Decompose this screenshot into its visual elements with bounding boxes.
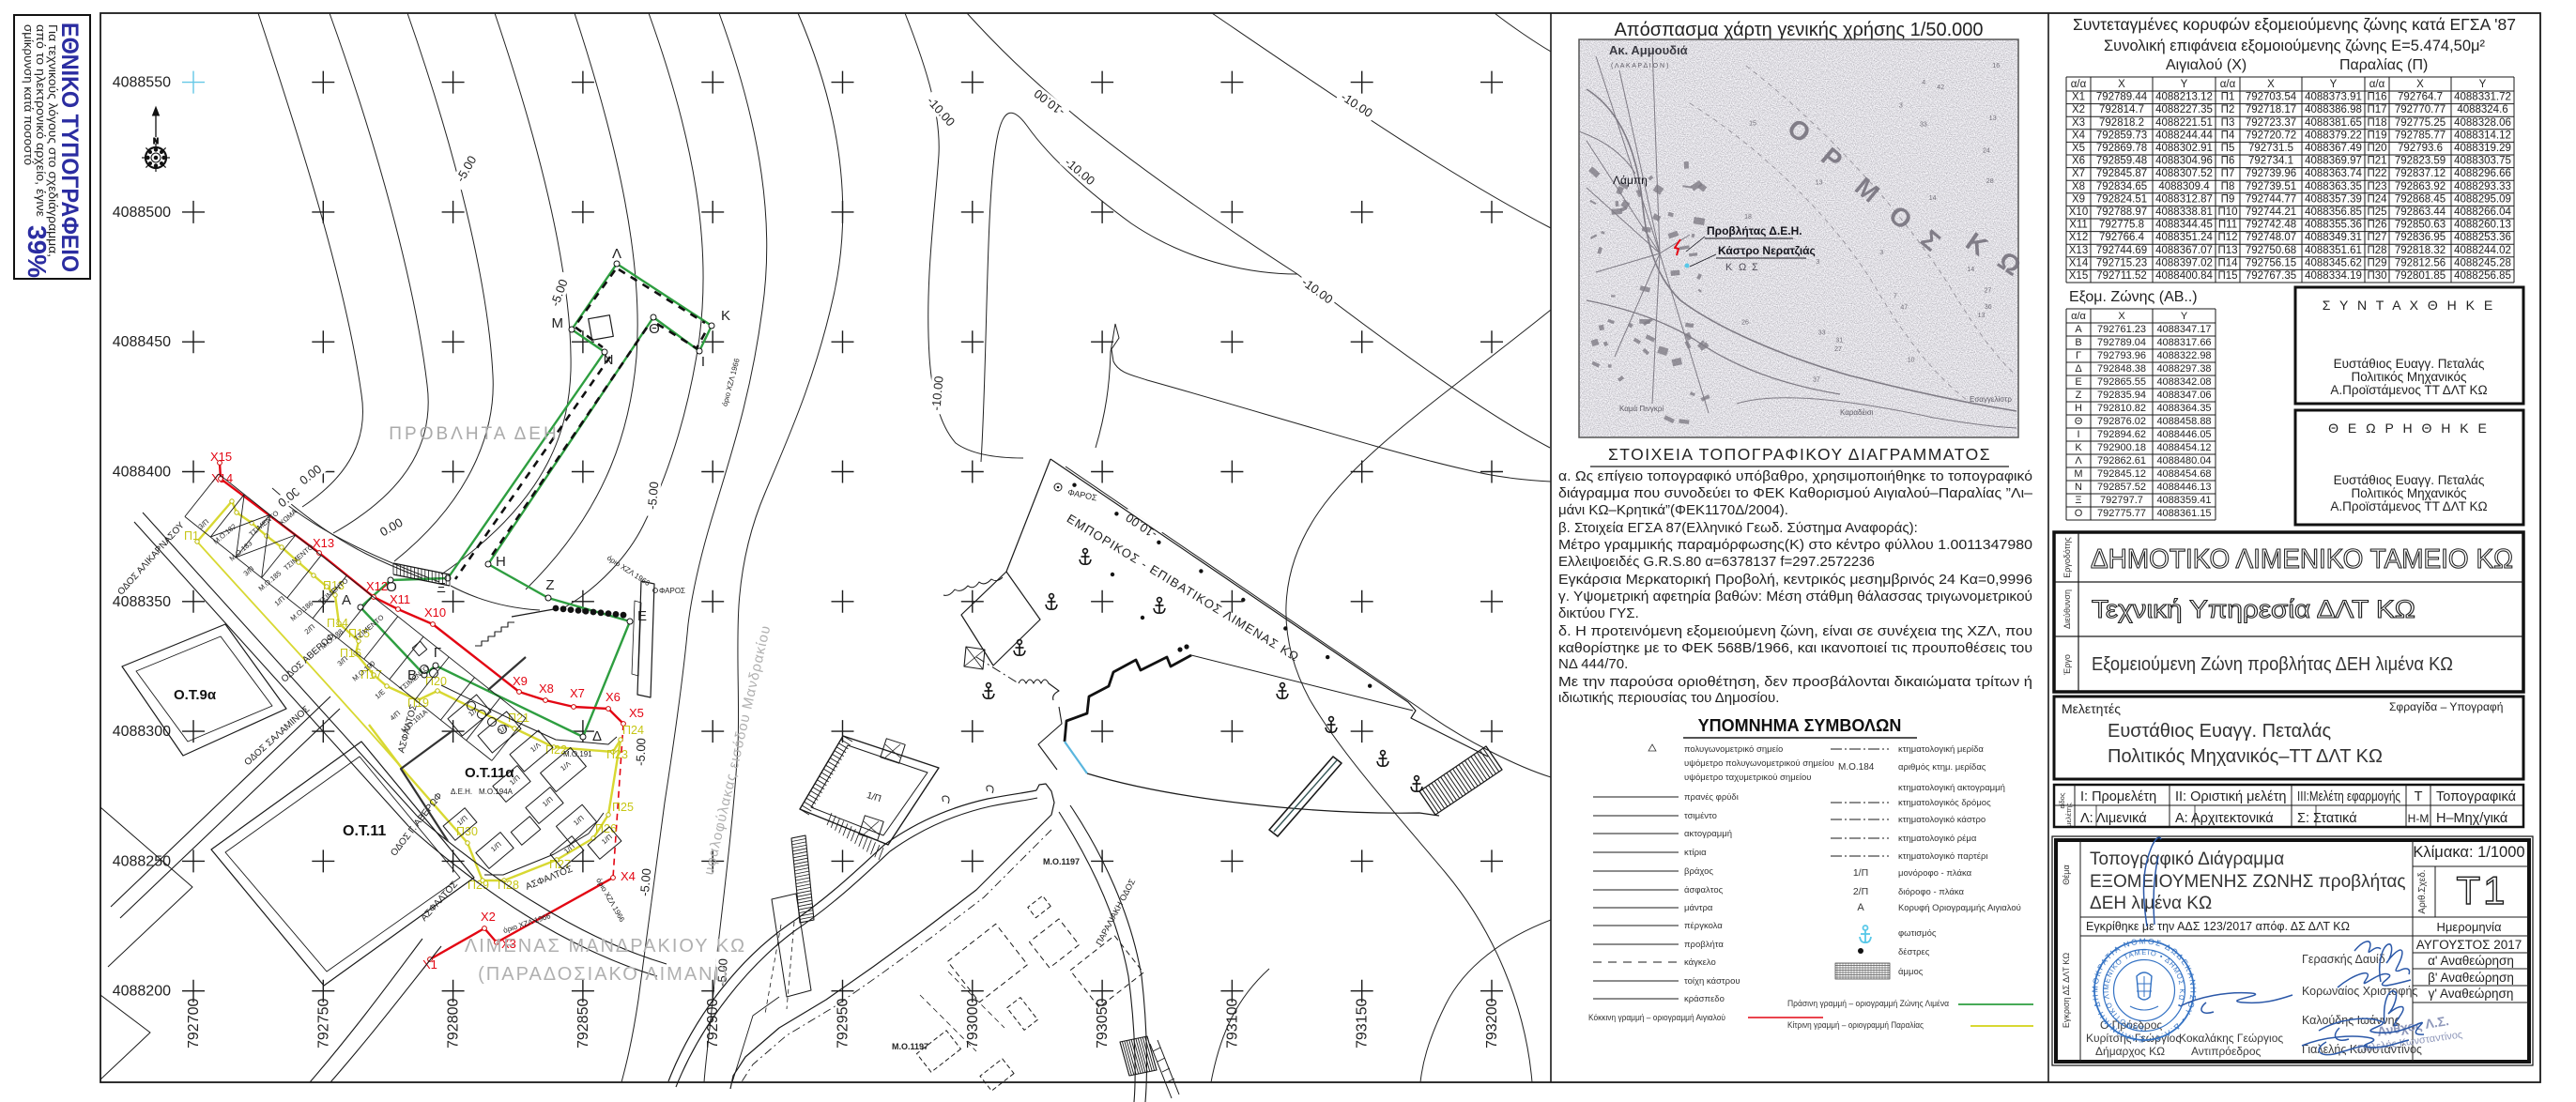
svg-text:X10: X10 xyxy=(2069,207,2088,218)
svg-text:792845.12: 792845.12 xyxy=(2097,468,2146,480)
svg-text:792850.63: 792850.63 xyxy=(2395,220,2446,231)
svg-text:4088297.38: 4088297.38 xyxy=(2156,363,2211,375)
svg-text:Π25: Π25 xyxy=(2367,207,2386,218)
svg-text:2/Π: 2/Π xyxy=(1853,886,1868,897)
svg-text:792720.72: 792720.72 xyxy=(2246,130,2296,141)
svg-text:792818.32: 792818.32 xyxy=(2395,245,2446,256)
svg-text:792711.52: 792711.52 xyxy=(2096,270,2147,282)
svg-text:Π13: Π13 xyxy=(2217,245,2237,256)
svg-text:X15: X15 xyxy=(2069,270,2088,282)
svg-text:792703.54: 792703.54 xyxy=(2246,92,2297,103)
svg-text:Πολιτικός Μηχανικός: Πολιτικός Μηχανικός xyxy=(2351,370,2467,384)
svg-text:ιδιωτικής περιουσίας του Δημοσ: ιδιωτικής περιουσίας του Δημοσίου. xyxy=(1558,690,1779,706)
svg-text:β. Στοιχεία ΕΓΣΑ 87(Ελληνικό Γ: β. Στοιχεία ΕΓΣΑ 87(Ελληνικό Γεωδ. Σύστη… xyxy=(1558,520,1918,536)
svg-text:Π19: Π19 xyxy=(2367,130,2386,141)
svg-text:διόροφο - πλάκα: διόροφο - πλάκα xyxy=(1898,887,1965,897)
svg-text:4088253.36: 4088253.36 xyxy=(2454,232,2511,243)
svg-text:792845.87: 792845.87 xyxy=(2096,168,2147,179)
svg-text:Αιγιαλού (Χ): Αιγιαλού (Χ) xyxy=(2166,57,2246,73)
svg-text:Εγκριση ΔΣ ΔΛΤ ΚΩ: Εγκριση ΔΣ ΔΛΤ ΚΩ xyxy=(2062,953,2071,1028)
svg-text:ΥΠΟΜΝΗΜΑ ΣΥΜΒΟΛΩΝ: ΥΠΟΜΝΗΜΑ ΣΥΜΒΟΛΩΝ xyxy=(1698,716,1902,735)
svg-text:792788.97: 792788.97 xyxy=(2096,207,2147,218)
svg-text:792793.6: 792793.6 xyxy=(2398,143,2443,154)
svg-text:Π2: Π2 xyxy=(2221,104,2235,115)
svg-text:κτίρια: κτίρια xyxy=(1684,848,1707,858)
svg-text:Π23: Π23 xyxy=(606,748,628,761)
svg-text:Με την παρούσα οριοθέτηση, δεν: Με την παρούσα οριοθέτηση, δεν προσβάλον… xyxy=(1558,674,2032,690)
svg-text:4088400: 4088400 xyxy=(113,465,171,481)
svg-text:4088317.66: 4088317.66 xyxy=(2156,337,2211,348)
svg-text:792900.18: 792900.18 xyxy=(2097,442,2146,453)
svg-text:4088328.06: 4088328.06 xyxy=(2454,117,2511,129)
svg-text:4088256.85: 4088256.85 xyxy=(2454,270,2511,282)
svg-text:792744.69: 792744.69 xyxy=(2096,245,2147,256)
svg-text:X12: X12 xyxy=(366,579,388,593)
svg-text:Π27: Π27 xyxy=(2367,232,2386,243)
svg-text:Η: Η xyxy=(2075,403,2082,414)
svg-text:4088355.36: 4088355.36 xyxy=(2305,220,2362,231)
svg-text:4088347.06: 4088347.06 xyxy=(2156,390,2211,401)
svg-text:792800: 792800 xyxy=(446,999,462,1048)
svg-text:4088331.72: 4088331.72 xyxy=(2454,92,2511,103)
svg-text:μελέτης: μελέτης xyxy=(2064,803,2073,827)
svg-text:Π28: Π28 xyxy=(2367,245,2386,256)
svg-text:X5: X5 xyxy=(2072,143,2085,154)
svg-text:4088312.87: 4088312.87 xyxy=(2155,193,2213,205)
svg-text:792748.07: 792748.07 xyxy=(2246,232,2296,243)
svg-text:Π6: Π6 xyxy=(2221,156,2235,167)
svg-text:κράσπεδο: κράσπεδο xyxy=(1684,994,1725,1004)
svg-text:792766.4: 792766.4 xyxy=(2099,232,2145,243)
svg-text:Ο: Ο xyxy=(2075,508,2083,519)
svg-text:μονόροφο - πλάκα: μονόροφο - πλάκα xyxy=(1898,868,1972,879)
svg-text:φωτισμός: φωτισμός xyxy=(1898,928,1937,939)
svg-text:Κλίμακα: 1/1000: Κλίμακα: 1/1000 xyxy=(2413,844,2524,861)
svg-text:α/α: α/α xyxy=(2220,79,2236,90)
svg-text:Εγκρίθηκε με την ΑΔΣ 123/2017: Εγκρίθηκε με την ΑΔΣ 123/2017 απόφ. ΔΣ Δ… xyxy=(2086,920,2350,933)
svg-text:Π14: Π14 xyxy=(2217,257,2238,268)
svg-text:Λ: Λ xyxy=(612,246,621,262)
svg-text:4088550: 4088550 xyxy=(113,75,171,91)
svg-text:Η: Η xyxy=(496,554,506,570)
svg-text:39%: 39% xyxy=(23,225,52,278)
svg-text:ΔΗΜΟΤΙΚΟ ΛΙΜΕΝΙΚΟ ΤΑΜΕΙΟ ΚΩ: ΔΗΜΟΤΙΚΟ ΛΙΜΕΝΙΚΟ ΤΑΜΕΙΟ ΚΩ xyxy=(2091,544,2513,574)
svg-text:Θέμα: Θέμα xyxy=(2062,865,2071,884)
svg-text:Α: Α xyxy=(342,592,351,608)
svg-text:άσφαλτος: άσφαλτος xyxy=(1684,885,1724,895)
svg-text:4088303.75: 4088303.75 xyxy=(2454,156,2511,167)
svg-text:4088227.35: 4088227.35 xyxy=(2155,104,2213,115)
svg-text:Π24: Π24 xyxy=(622,724,644,737)
svg-text:X9: X9 xyxy=(2072,193,2085,205)
svg-text:4088293.33: 4088293.33 xyxy=(2454,181,2511,192)
svg-text:X3: X3 xyxy=(2072,117,2085,129)
svg-text:4088359.41: 4088359.41 xyxy=(2156,495,2211,506)
svg-text:31: 31 xyxy=(1835,337,1843,344)
svg-text:X12: X12 xyxy=(2069,232,2088,243)
svg-text:37: 37 xyxy=(1813,377,1820,384)
svg-text:792812.56: 792812.56 xyxy=(2395,257,2446,268)
svg-text:Ευστάθιος Ευαγγ. Πεταλάς: Ευστάθιος Ευαγγ. Πεταλάς xyxy=(2108,721,2331,742)
svg-text:4088295.09: 4088295.09 xyxy=(2454,193,2511,205)
svg-text:Μ.Ο.191: Μ.Ο.191 xyxy=(563,750,592,758)
svg-text:4088446.13: 4088446.13 xyxy=(2156,482,2211,493)
svg-text:Α.Προϊστάμενος ΤΤ ΔΛΤ ΚΩ: Α.Προϊστάμενος ΤΤ ΔΛΤ ΚΩ xyxy=(2330,383,2487,397)
svg-text:Δήμαρχος ΚΩ: Δήμαρχος ΚΩ xyxy=(2095,1045,2165,1058)
svg-text:792770.77: 792770.77 xyxy=(2395,104,2446,115)
svg-text:792761.23: 792761.23 xyxy=(2097,324,2146,335)
svg-text:3: 3 xyxy=(1899,102,1903,109)
svg-text:Π11: Π11 xyxy=(2218,220,2237,231)
svg-text:Μ: Μ xyxy=(2074,468,2082,480)
svg-text:Ι: Ι xyxy=(701,354,705,370)
svg-text:4088342.08: 4088342.08 xyxy=(2156,376,2211,388)
svg-text:4088304.96: 4088304.96 xyxy=(2155,156,2213,167)
svg-text:Παραλίας (Π): Παραλίας (Π) xyxy=(2339,57,2428,73)
svg-text:4088244.44: 4088244.44 xyxy=(2155,130,2213,141)
svg-text:18: 18 xyxy=(1744,214,1752,221)
svg-text:4088364.35: 4088364.35 xyxy=(2156,403,2211,414)
svg-text:Α.Προϊστάμενος ΤΤ ΔΛΤ ΚΩ: Α.Προϊστάμενος ΤΤ ΔΛΤ ΚΩ xyxy=(2330,499,2487,513)
svg-text:Π24: Π24 xyxy=(2367,193,2387,205)
svg-text:792739.96: 792739.96 xyxy=(2246,168,2296,179)
svg-text:792739.51: 792739.51 xyxy=(2246,181,2296,192)
svg-text:Γ: Γ xyxy=(2076,350,2081,361)
svg-text:792835.94: 792835.94 xyxy=(2097,390,2146,401)
svg-text:γ. Υψομετρική αφετηρία βαθών:: γ. Υψομετρική αφετηρία βαθών: Μέση στάθμ… xyxy=(1558,589,2032,605)
svg-text:X10: X10 xyxy=(424,605,446,620)
svg-text:Ευστάθιος Ευαγγ. Πεταλάς: Ευστάθιος Ευαγγ. Πεταλάς xyxy=(2334,473,2485,487)
svg-text:ΑΥΓΟΥΣΤΟΣ 2017: ΑΥΓΟΥΣΤΟΣ 2017 xyxy=(2416,938,2522,952)
svg-text:Μ.Ο.194Α: Μ.Ο.194Α xyxy=(479,788,514,796)
svg-text:Τοπογραφικό Διάγραμμα: Τοπογραφικό Διάγραμμα xyxy=(2090,849,2284,869)
svg-text:Π8: Π8 xyxy=(2221,181,2235,192)
svg-text:792723.37: 792723.37 xyxy=(2246,117,2296,129)
svg-text:793150: 793150 xyxy=(1355,999,1371,1048)
svg-text:792700: 792700 xyxy=(186,999,202,1048)
svg-text:Ο.Τ.9α: Ο.Τ.9α xyxy=(174,687,217,703)
svg-text:792834.65: 792834.65 xyxy=(2096,181,2147,192)
svg-text:Λ: Λ xyxy=(2075,455,2082,467)
svg-text:Π5: Π5 xyxy=(2221,143,2235,154)
svg-text:16: 16 xyxy=(1992,63,2000,69)
svg-text:Ζ: Ζ xyxy=(545,577,554,593)
svg-text:Γ: Γ xyxy=(434,645,441,661)
svg-text:X2: X2 xyxy=(481,910,496,924)
svg-text:προβλήτα: προβλήτα xyxy=(1684,940,1724,950)
svg-text:Π22: Π22 xyxy=(2367,168,2386,179)
svg-text:4088347.17: 4088347.17 xyxy=(2156,324,2211,335)
svg-text:Π1: Π1 xyxy=(184,529,199,543)
svg-text:κτηματολογική ακτογραμμή: κτηματολογική ακτογραμμή xyxy=(1898,783,2005,793)
svg-text:X8: X8 xyxy=(539,681,554,696)
svg-text:X4: X4 xyxy=(2072,130,2086,141)
svg-text:4088266.04: 4088266.04 xyxy=(2454,207,2511,218)
svg-text:Β: Β xyxy=(2075,337,2081,348)
svg-text:Y: Y xyxy=(2181,311,2188,322)
svg-text:4088200: 4088200 xyxy=(113,984,171,1000)
svg-text:792775.25: 792775.25 xyxy=(2395,117,2446,129)
svg-text:792789.44: 792789.44 xyxy=(2096,92,2148,103)
svg-text:13: 13 xyxy=(1978,313,1986,319)
svg-text:4088309.4: 4088309.4 xyxy=(2158,181,2210,192)
svg-text:4088345.62: 4088345.62 xyxy=(2305,257,2362,268)
svg-text:X: X xyxy=(2118,79,2125,90)
svg-text:24: 24 xyxy=(1983,147,1990,154)
svg-text:Μ.Ο.1197: Μ.Ο.1197 xyxy=(1043,857,1080,866)
svg-text:792785.77: 792785.77 xyxy=(2395,130,2446,141)
svg-text:792801.85: 792801.85 xyxy=(2395,270,2446,282)
svg-text:Π18: Π18 xyxy=(2367,117,2386,129)
svg-text:792865.55: 792865.55 xyxy=(2097,376,2146,388)
svg-text:792731.5: 792731.5 xyxy=(2248,143,2293,154)
svg-text:Θ: Θ xyxy=(2075,416,2083,427)
svg-text:X: X xyxy=(2118,311,2125,322)
svg-text:X: X xyxy=(2416,79,2424,90)
svg-text:792775.8: 792775.8 xyxy=(2099,220,2144,231)
svg-text:Η–Μηχ/γικά: Η–Μηχ/γικά xyxy=(2436,811,2507,826)
svg-text:26: 26 xyxy=(1741,320,1749,327)
svg-text:4088454.12: 4088454.12 xyxy=(2156,442,2211,453)
svg-text:Συντεταγμένες κορυφών εξομειού: Συντεταγμένες κορυφών εξομειούμενης ζώνη… xyxy=(2073,15,2516,34)
svg-text:Π9: Π9 xyxy=(2221,193,2235,205)
svg-text:4088446.05: 4088446.05 xyxy=(2156,429,2211,440)
svg-text:α/α: α/α xyxy=(2071,79,2087,90)
svg-text:Δ: Δ xyxy=(592,728,602,744)
svg-text:792744.77: 792744.77 xyxy=(2246,193,2296,205)
svg-text:7: 7 xyxy=(1894,294,1897,300)
svg-text:4088357.39: 4088357.39 xyxy=(2305,193,2362,205)
svg-text:4088351.24: 4088351.24 xyxy=(2155,232,2213,243)
svg-text:Συνολική επιφάνεια εξομοιούμεν: Συνολική επιφάνεια εξομοιούμενης ζώνης Ε… xyxy=(2104,38,2486,54)
svg-text:κτηματολογικό παρτέρι: κτηματολογικό παρτέρι xyxy=(1898,851,1987,862)
svg-text:τσιμέντο: τσιμέντο xyxy=(1684,811,1717,821)
svg-text:47: 47 xyxy=(1900,305,1908,312)
svg-text:4088245.28: 4088245.28 xyxy=(2454,257,2511,268)
svg-text:ΦΑΡΟΣ: ΦΑΡΟΣ xyxy=(659,587,685,595)
svg-text:X: X xyxy=(2267,79,2275,90)
svg-text:X8: X8 xyxy=(2072,181,2085,192)
svg-text:793200: 793200 xyxy=(1484,999,1500,1048)
svg-text:Y: Y xyxy=(2330,79,2338,90)
svg-text:792837.12: 792837.12 xyxy=(2395,168,2446,179)
svg-text:Κάστρο Νερατζιάς: Κάστρο Νερατζιάς xyxy=(1718,244,1816,257)
svg-text:4088302.91: 4088302.91 xyxy=(2155,143,2213,154)
svg-text:42: 42 xyxy=(1937,84,1944,91)
svg-text:ΠΡΟΒΛΗΤΑ ΔΕΗ: ΠΡΟΒΛΗΤΑ ΔΕΗ xyxy=(389,424,559,444)
svg-text:Τεχνική Υπηρεσία ΔΛΤ ΚΩ: Τεχνική Υπηρεσία ΔΛΤ ΚΩ xyxy=(2092,595,2415,623)
svg-text:792859.73: 792859.73 xyxy=(2096,130,2147,141)
svg-text:Κ: Κ xyxy=(2075,442,2082,453)
svg-text:Διεύθυνση: Διεύθυνση xyxy=(2062,589,2072,629)
svg-text:4088356.85: 4088356.85 xyxy=(2305,207,2362,218)
svg-text:Ελλειψοειδές G.R.S.80 α=637813: Ελλειψοειδές G.R.S.80 α=6378137 f=297.25… xyxy=(1558,554,1875,570)
svg-text:4088363.74: 4088363.74 xyxy=(2305,168,2362,179)
svg-text:Ακ. Αμμουδιά: Ακ. Αμμουδιά xyxy=(1609,43,1688,57)
svg-text:13: 13 xyxy=(1816,179,1823,186)
svg-text:10: 10 xyxy=(1908,357,1915,363)
svg-text:792789.04: 792789.04 xyxy=(2097,337,2146,348)
svg-text:Πολιτικός Μηχανικός: Πολιτικός Μηχανικός xyxy=(2351,486,2467,500)
svg-text:ΣΤΟΙΧΕΙΑ ΤΟΠΟΓΡΑΦΙΚΟΥ ΔΙΑΓΡΑ: ΣΤΟΙΧΕΙΑ ΤΟΠΟΓΡΑΦΙΚΟΥ ΔΙΑΓΡΑΜΜΑΤΟΣ xyxy=(1608,445,1991,464)
svg-text:Κοκαλάκης Γεώργιος: Κοκαλάκης Γεώργιος xyxy=(2179,1032,2283,1045)
svg-text:4088367.49: 4088367.49 xyxy=(2305,143,2362,154)
svg-text:792793.96: 792793.96 xyxy=(2097,350,2146,361)
svg-text:Π25: Π25 xyxy=(612,801,634,814)
svg-text:Εγκάρσια Μερκατορική Προβολή,: Εγκάρσια Μερκατορική Προβολή, κεντρικός … xyxy=(1558,572,2032,588)
svg-text:Αντιπρόεδρος: Αντιπρόεδρος xyxy=(2191,1045,2262,1058)
svg-text:Μ.Ο.1197: Μ.Ο.1197 xyxy=(892,1042,928,1051)
svg-text:Εξομειούμενη Ζώνη προβλήτας: Εξομειούμενη Ζώνη προβλήτας ΔΕΗ λιμένα Κ… xyxy=(2092,654,2453,675)
svg-text:πρανές φρύδι: πρανές φρύδι xyxy=(1684,792,1739,803)
svg-text:-5.00: -5.00 xyxy=(645,482,662,511)
svg-text:ΙΙΙ:Μελέτη εφαρμογής: ΙΙΙ:Μελέτη εφαρμογής xyxy=(2297,789,2400,804)
svg-text:Π4: Π4 xyxy=(2221,130,2235,141)
svg-text:Α: Αρχιτεκτονικά: Α: Αρχιτεκτονικά xyxy=(2175,811,2274,826)
svg-text:792824.51: 792824.51 xyxy=(2096,193,2147,205)
svg-text:κτηματολογική μερίδα: κτηματολογική μερίδα xyxy=(1898,744,1984,755)
svg-text:Η-Μ: Η-Μ xyxy=(2408,812,2430,825)
svg-text:792859.48: 792859.48 xyxy=(2096,156,2147,167)
svg-text:792894.62: 792894.62 xyxy=(2097,429,2146,440)
svg-text:792767.35: 792767.35 xyxy=(2246,270,2296,282)
svg-text:4088244.02: 4088244.02 xyxy=(2454,245,2511,256)
svg-text:Π10: Π10 xyxy=(2217,207,2237,218)
svg-text:Προβλήτας Δ.Ε.Η.: Προβλήτας Δ.Ε.Η. xyxy=(1707,224,1802,237)
svg-text:Μ.Ο.184: Μ.Ο.184 xyxy=(1838,762,1875,773)
svg-text:1/Π: 1/Π xyxy=(1853,867,1868,879)
svg-text:Y: Y xyxy=(2479,79,2487,90)
svg-text:Πράσινη γραμμή – οριογραμμή Ζ: Πράσινη γραμμή – οριογραμμή Ζώνης Λιμένα xyxy=(1787,999,1949,1009)
svg-text:Εξομ. Ζώνης (ΑΒ..): Εξομ. Ζώνης (ΑΒ..) xyxy=(2069,289,2198,305)
svg-text:Κίτρινη γραμμή – οριογραμμή Πα: Κίτρινη γραμμή – οριογραμμή Παραλίας xyxy=(1787,1020,1924,1031)
svg-text:4088307.52: 4088307.52 xyxy=(2155,168,2213,179)
svg-text:792823.59: 792823.59 xyxy=(2395,156,2446,167)
svg-text:Ζ: Ζ xyxy=(2076,390,2082,401)
svg-text:α' Αναθεώρηση: α' Αναθεώρηση xyxy=(2428,954,2514,968)
svg-text:διάγραμμα που συνοδεύει το ΦΕΚ: διάγραμμα που συνοδεύει το ΦΕΚ Καθορισμο… xyxy=(1558,485,2033,501)
svg-text:792810.82: 792810.82 xyxy=(2097,403,2146,414)
svg-text:X4: X4 xyxy=(621,869,636,883)
svg-text:4088386.98: 4088386.98 xyxy=(2305,104,2362,115)
svg-text:Θ: Θ xyxy=(649,321,660,337)
svg-text:Ε: Ε xyxy=(2075,376,2081,388)
svg-text:Απόσπασμα χάρτη γενικής χρήσης: Απόσπασμα χάρτη γενικής χρήσης 1/50.000 xyxy=(1614,20,1983,40)
svg-text:792750.68: 792750.68 xyxy=(2246,245,2296,256)
svg-text:792715.23: 792715.23 xyxy=(2096,257,2147,268)
svg-text:4088344.45: 4088344.45 xyxy=(2155,220,2213,231)
svg-text:4088250: 4088250 xyxy=(113,853,171,869)
svg-text:4088450: 4088450 xyxy=(113,334,171,350)
svg-text:κτηματολογικό κάστρο: κτηματολογικό κάστρο xyxy=(1898,815,1986,825)
svg-text:33: 33 xyxy=(1920,122,1927,129)
svg-text:υψόμετρο ταχυμετρικού σημείου: υψόμετρο ταχυμετρικού σημείου xyxy=(1684,773,1812,783)
svg-text:792863.92: 792863.92 xyxy=(2395,181,2446,192)
svg-text:792756.15: 792756.15 xyxy=(2246,257,2296,268)
svg-text:X15: X15 xyxy=(210,450,232,464)
svg-text:κτηματολογικός δρόμος: κτηματολογικός δρόμος xyxy=(1898,798,1991,808)
svg-text:βράχος: βράχος xyxy=(1684,866,1713,877)
svg-text:X9: X9 xyxy=(513,674,528,688)
svg-text:Π15: Π15 xyxy=(2217,270,2237,282)
svg-text:X7: X7 xyxy=(570,686,585,700)
svg-text:792857.52: 792857.52 xyxy=(2097,482,2146,493)
svg-text:X2: X2 xyxy=(2072,104,2085,115)
svg-text:Λ: Λιμενικά: Λ: Λιμενικά xyxy=(2080,811,2147,826)
svg-text:X5: X5 xyxy=(629,706,644,720)
svg-text:δ. Η προτεινόμενη εξομειούμενη: δ. Η προτεινόμενη εξομειούμενη ζώνη, είν… xyxy=(1558,623,2032,639)
svg-text:-5.00: -5.00 xyxy=(637,868,654,897)
svg-text:4088373.91: 4088373.91 xyxy=(2305,92,2362,103)
svg-text:792775.77: 792775.77 xyxy=(2097,508,2146,519)
svg-text:δέστρες: δέστρες xyxy=(1898,947,1930,957)
svg-text:4088458.88: 4088458.88 xyxy=(2156,416,2211,427)
svg-text:4088363.35: 4088363.35 xyxy=(2305,181,2362,192)
svg-text:Δ: Δ xyxy=(2075,363,2082,375)
svg-text:Για τεχνικούς λόγους στο σχεδι: Για τεχνικούς λόγους στο σχεδιάγραμμα, xyxy=(46,24,59,257)
svg-text:ΛΙΜΕΝΑΣ ΜΑΝΔΡΑΚΙΟΥ ΚΩ: ΛΙΜΕΝΑΣ ΜΑΝΔΡΑΚΙΟΥ ΚΩ xyxy=(465,936,746,957)
svg-text:α/α: α/α xyxy=(2369,79,2385,90)
svg-text:γ' Αναθεώρηση: γ' Αναθεώρηση xyxy=(2429,987,2514,1001)
svg-text:αριθμός κτημ. μερίδας: αριθμός κτημ. μερίδας xyxy=(1898,762,1986,773)
svg-text:Καμά Πινγκρί: Καμά Πινγκρί xyxy=(1619,405,1664,413)
svg-text:ΙΙ: Οριστική μελέτη: ΙΙ: Οριστική μελέτη xyxy=(2175,789,2286,804)
svg-text:4088369.97: 4088369.97 xyxy=(2305,156,2362,167)
svg-text:Γερασκής Δαυίδ: Γερασκής Δαυίδ xyxy=(2302,953,2385,966)
svg-text:Π30: Π30 xyxy=(2367,270,2386,282)
svg-text:τοίχη κάστρου: τοίχη κάστρου xyxy=(1684,976,1740,987)
svg-text:4088351.61: 4088351.61 xyxy=(2305,245,2362,256)
svg-text:X6: X6 xyxy=(606,690,621,704)
svg-text:792764.7: 792764.7 xyxy=(2398,92,2443,103)
svg-text:Π21: Π21 xyxy=(2367,156,2386,167)
svg-text:4088480.04: 4088480.04 xyxy=(2156,455,2211,467)
svg-text:792900: 792900 xyxy=(705,999,721,1048)
svg-text:Κορωναίος Χριστοφής: Κορωναίος Χριστοφής xyxy=(2302,985,2417,998)
svg-text:792750: 792750 xyxy=(315,999,331,1048)
svg-text:792797.7: 792797.7 xyxy=(2100,495,2143,506)
svg-text:Ο.Τ.11: Ο.Τ.11 xyxy=(343,823,386,839)
svg-text:Κόκκινη γραμμή – οριογραμμή: Κόκκινη γραμμή – οριογραμμή Αιγιαλού xyxy=(1588,1013,1725,1023)
svg-text:α/α: α/α xyxy=(2071,311,2086,322)
svg-text:27: 27 xyxy=(1985,288,1992,295)
svg-text:X13: X13 xyxy=(313,536,334,550)
svg-text:3: 3 xyxy=(1816,259,1819,266)
svg-text:υψόμετρο πολυγωνομετρικού σημε: υψόμετρο πολυγωνομετρικού σημείου xyxy=(1684,758,1834,769)
svg-text:792818.2: 792818.2 xyxy=(2099,117,2144,129)
svg-text:15: 15 xyxy=(1749,120,1756,127)
svg-text:X14: X14 xyxy=(2069,257,2089,268)
svg-text:Εργοδότης: Εργοδότης xyxy=(2062,537,2072,578)
svg-text:Εσαγγελίστρ: Εσαγγελίστρ xyxy=(1970,395,2012,404)
svg-text:κτηματολογικό ρέμα: κτηματολογικό ρέμα xyxy=(1898,834,1977,844)
svg-text:Π7: Π7 xyxy=(2221,168,2235,179)
svg-text:792868.45: 792868.45 xyxy=(2395,193,2446,205)
svg-text:Π17: Π17 xyxy=(2367,104,2386,115)
svg-text:Σ Υ Ν Τ Α Χ Θ Η Κ Ε: Σ Υ Ν Τ Α Χ Θ Η Κ Ε xyxy=(2323,298,2495,313)
svg-text:27: 27 xyxy=(1834,346,1842,353)
svg-text:4088260.13: 4088260.13 xyxy=(2454,220,2511,231)
svg-text:X1: X1 xyxy=(2072,92,2085,103)
svg-text:Πολιτικός Μηχανικός–ΤΤ ΔΛΤ: Πολιτικός Μηχανικός–ΤΤ ΔΛΤ ΚΩ xyxy=(2108,746,2383,767)
svg-text:4088296.66: 4088296.66 xyxy=(2454,168,2511,179)
svg-text:Π26: Π26 xyxy=(2367,220,2386,231)
svg-text:Σ: Στατικά: Σ: Στατικά xyxy=(2297,811,2357,826)
svg-text:4088213.12: 4088213.12 xyxy=(2155,92,2213,103)
svg-text:4088454.68: 4088454.68 xyxy=(2156,468,2211,480)
svg-text:-10.00: -10.00 xyxy=(928,375,945,411)
svg-text:Ξ: Ξ xyxy=(2075,495,2081,506)
